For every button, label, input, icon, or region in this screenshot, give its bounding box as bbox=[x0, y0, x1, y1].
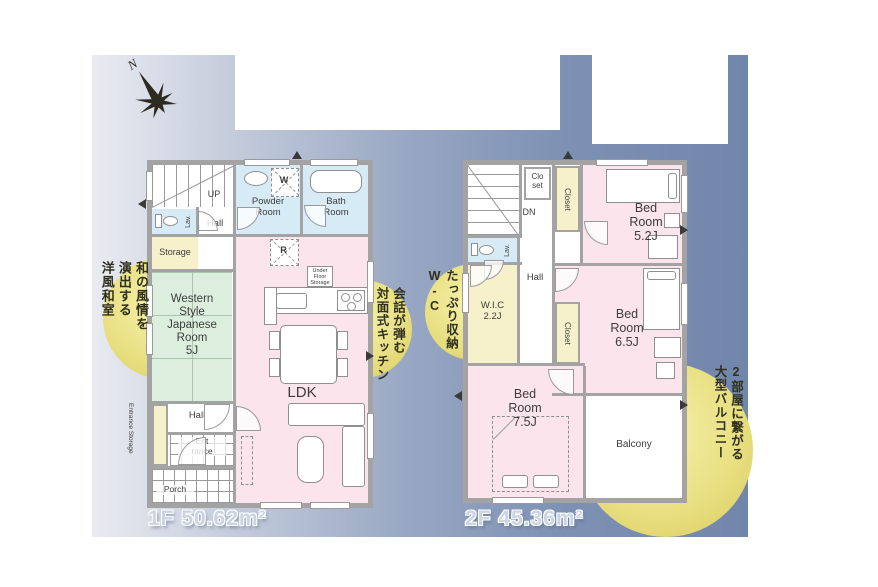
wic-label: W.I.C 2.2J bbox=[468, 301, 517, 322]
compass-north-label: N bbox=[124, 55, 141, 74]
vent-triangle-icon bbox=[563, 151, 573, 159]
floor1-stairs bbox=[152, 165, 233, 207]
wall bbox=[300, 165, 303, 234]
floor2-closet-middle: Closet bbox=[555, 302, 580, 364]
window bbox=[596, 159, 648, 166]
callout-text-kitchen: 会話が弾む 対面式キッチン bbox=[372, 287, 406, 387]
wall bbox=[233, 165, 236, 503]
refrigerator-label: R bbox=[270, 245, 297, 255]
stairs-diagonal bbox=[152, 166, 234, 208]
floor2-hall-label: Hall bbox=[520, 273, 550, 284]
stairs-up-label: UP bbox=[198, 189, 230, 199]
wall bbox=[583, 366, 586, 498]
chair-icon bbox=[269, 331, 280, 350]
background-notch-1 bbox=[235, 55, 560, 130]
pillow-icon bbox=[533, 475, 559, 488]
window bbox=[367, 413, 374, 459]
floor2-stairs bbox=[468, 165, 519, 235]
vent-triangle-icon bbox=[292, 151, 302, 159]
toilet-tank-icon bbox=[155, 214, 162, 228]
wall bbox=[152, 466, 233, 469]
background-notch-2 bbox=[592, 55, 728, 144]
stairs-diagonal bbox=[467, 165, 519, 236]
wall bbox=[552, 263, 682, 266]
window bbox=[244, 159, 290, 166]
entrance-storage-label: Entrance Storage bbox=[124, 403, 134, 467]
vent-triangle-icon bbox=[680, 400, 688, 410]
floor1-plan: UP Lav. Hall W Powder Room Bath Room Sto… bbox=[147, 160, 373, 508]
stove-burner-icon bbox=[353, 293, 362, 302]
window bbox=[681, 283, 688, 325]
wall bbox=[468, 235, 522, 238]
bedroom-52-label: Bed Room 5.2J bbox=[614, 201, 678, 243]
porch-label: Porch bbox=[156, 485, 194, 495]
bedroom-65-label: Bed Room 6.5J bbox=[594, 307, 660, 349]
bedroom-75-label: Bed Room 7.5J bbox=[496, 387, 554, 429]
pillow-icon bbox=[502, 475, 528, 488]
window bbox=[146, 171, 153, 201]
door-arc bbox=[198, 211, 218, 231]
ottoman-icon bbox=[297, 436, 324, 483]
balcony-label: Balcony bbox=[601, 439, 667, 450]
bed-icon bbox=[606, 169, 680, 203]
tv-board-icon bbox=[241, 436, 253, 485]
japanese-room-label: Western Style Japanese Room 5J bbox=[152, 293, 232, 358]
stove-burner-icon bbox=[341, 293, 350, 302]
window bbox=[681, 175, 688, 213]
compass: N bbox=[112, 50, 208, 154]
wall bbox=[519, 165, 522, 238]
floor2-closet-upper: Closet bbox=[555, 166, 580, 232]
chair-icon bbox=[337, 331, 348, 350]
wall bbox=[168, 432, 233, 435]
stove-burner-icon bbox=[347, 302, 356, 311]
callout-text-balcony: 2部屋に繋がる 大型バルコニー bbox=[710, 365, 744, 465]
floor1-lavatory-label: Lav. bbox=[180, 209, 196, 234]
window bbox=[310, 502, 350, 509]
wall bbox=[517, 235, 520, 366]
kitchen-sink-icon bbox=[276, 293, 307, 309]
vent-triangle-icon bbox=[454, 391, 462, 401]
powder-sink-icon bbox=[244, 171, 268, 186]
washer-label: W bbox=[271, 175, 297, 185]
floor1-storage-label: Storage bbox=[152, 247, 198, 257]
toilet-bowl-icon bbox=[163, 216, 178, 226]
vent-triangle-icon bbox=[138, 199, 146, 209]
wall bbox=[236, 234, 368, 237]
sofa-icon bbox=[342, 426, 365, 487]
chair-icon bbox=[269, 358, 280, 377]
window bbox=[492, 497, 544, 504]
side-table-icon bbox=[656, 362, 675, 379]
callout-text-japanese-room: 和の風情を 演出する 洋風和室 bbox=[104, 261, 150, 387]
entrance-storage-cabinet bbox=[152, 404, 168, 466]
pillow-icon bbox=[647, 271, 676, 280]
closet-small-label: Clo set bbox=[524, 172, 551, 190]
floor2-lavatory-label: Lav. bbox=[500, 238, 515, 262]
pillow-icon bbox=[668, 173, 677, 199]
door-arc bbox=[204, 404, 230, 430]
wall bbox=[468, 363, 585, 366]
vent-triangle-icon bbox=[680, 225, 688, 235]
toilet-bowl-icon bbox=[479, 245, 494, 255]
wall bbox=[152, 269, 233, 272]
sofa-icon bbox=[288, 403, 365, 426]
dining-table-icon bbox=[280, 325, 337, 384]
compass-star-icon: N bbox=[112, 50, 208, 154]
window bbox=[462, 273, 469, 313]
toilet-tank-icon bbox=[471, 243, 478, 256]
window bbox=[310, 159, 358, 166]
floor1-area-label: 1F 50.62m² bbox=[148, 507, 267, 531]
chair-icon bbox=[337, 358, 348, 377]
wall bbox=[152, 234, 233, 237]
bathtub-icon bbox=[310, 170, 362, 193]
under-floor-storage-label: Under Floor Storage bbox=[307, 268, 333, 287]
floor2-area-label: 2F 45.36m² bbox=[465, 507, 584, 531]
wall bbox=[580, 165, 583, 266]
floor2-plan: DN Clo set Closet Bed Room 5.2J Lav. W.I… bbox=[463, 160, 687, 503]
callout-text-storage-wc: たっぷり収納 W-C bbox=[427, 269, 459, 363]
stove-icon bbox=[337, 290, 365, 311]
floorplan-page: UP Lav. Hall W Powder Room Bath Room Sto… bbox=[0, 0, 878, 587]
